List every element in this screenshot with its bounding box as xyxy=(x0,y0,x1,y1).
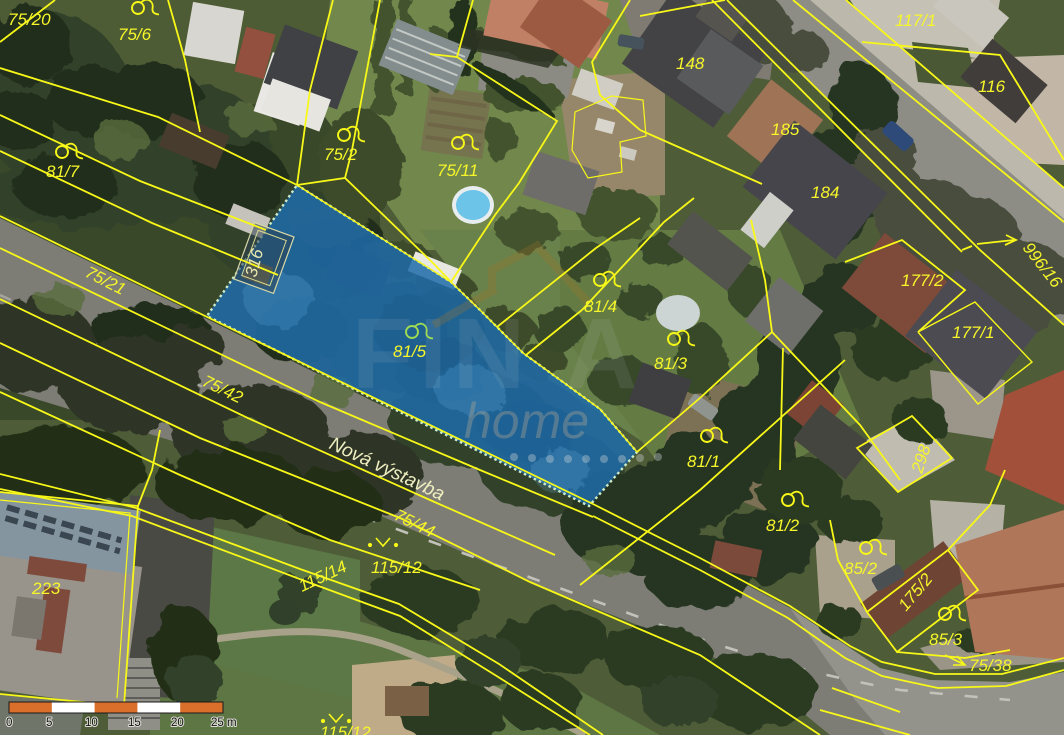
svg-text:81/4: 81/4 xyxy=(584,297,617,316)
svg-text:81/2: 81/2 xyxy=(766,516,800,535)
svg-text:184: 184 xyxy=(811,183,839,202)
svg-text:5: 5 xyxy=(46,717,52,729)
svg-text:75/11: 75/11 xyxy=(437,161,478,180)
svg-text:148: 148 xyxy=(676,54,705,73)
svg-text:116: 116 xyxy=(978,77,1006,96)
svg-text:81/7: 81/7 xyxy=(46,162,80,181)
svg-text:185: 185 xyxy=(771,120,800,139)
svg-text:85/3: 85/3 xyxy=(929,630,963,649)
svg-text:20: 20 xyxy=(171,717,184,729)
svg-text:75/20: 75/20 xyxy=(8,10,51,29)
svg-text:home: home xyxy=(464,393,589,449)
svg-text:81/3: 81/3 xyxy=(654,354,688,373)
svg-text:223: 223 xyxy=(31,579,61,598)
svg-text:0: 0 xyxy=(6,717,12,729)
svg-text:75/38: 75/38 xyxy=(969,656,1012,675)
svg-text:75/2: 75/2 xyxy=(324,145,358,164)
svg-text:75/6: 75/6 xyxy=(118,25,152,44)
svg-text:115/12: 115/12 xyxy=(320,723,371,735)
svg-text:115/12: 115/12 xyxy=(371,558,422,577)
svg-text:81/1: 81/1 xyxy=(687,452,720,471)
svg-text:10: 10 xyxy=(85,717,98,729)
svg-text:81/5: 81/5 xyxy=(393,342,427,361)
svg-text:25 m: 25 m xyxy=(211,717,237,729)
svg-text:177/2: 177/2 xyxy=(901,271,944,290)
svg-text:117/1: 117/1 xyxy=(895,11,936,30)
svg-text:15: 15 xyxy=(128,717,141,729)
svg-text:85/2: 85/2 xyxy=(844,559,878,578)
svg-text:177/1: 177/1 xyxy=(952,323,995,342)
